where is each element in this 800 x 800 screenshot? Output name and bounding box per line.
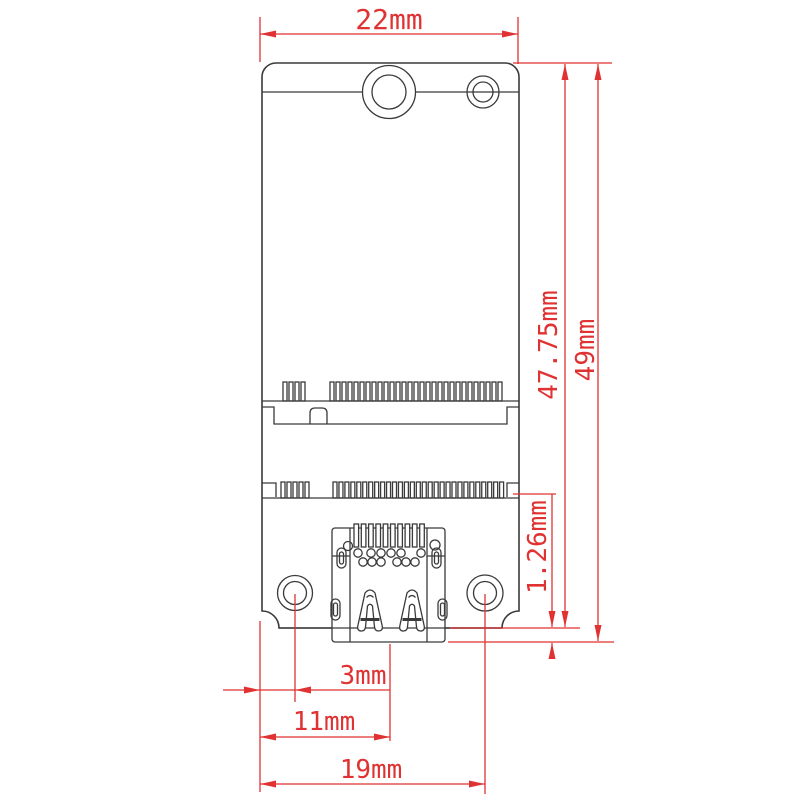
dim-label-edge-to-hole: 3mm [340, 661, 387, 691]
arrowhead [244, 687, 260, 694]
arrowhead [260, 31, 276, 38]
connector-shell [332, 528, 445, 642]
dimension-49mm: 49mm [571, 64, 602, 641]
latch-crossbar [361, 618, 380, 621]
dim-label-overhang: 1.26mm [523, 500, 553, 594]
arrowhead [549, 643, 556, 659]
dimension-11mm: 11mm [260, 707, 390, 741]
gold-fingers-lower-left [281, 482, 309, 498]
dim-label-edge-to-center: 11mm [293, 707, 356, 737]
top-center-hole [363, 66, 416, 119]
arrowhead [562, 64, 569, 80]
arrowhead [549, 611, 556, 627]
arrowhead [295, 687, 311, 694]
dimension-drawing-page: 22mm 47.75mm 49mm 1.26mm 3mm [0, 0, 800, 800]
arrowhead [260, 781, 276, 788]
gold-fingers-upper-main [330, 382, 502, 401]
arrowhead [595, 625, 602, 641]
arrowhead [469, 781, 485, 788]
dim-label-top-width: 22mm [355, 3, 422, 36]
dim-label-overall-height: 49mm [571, 319, 601, 382]
gold-fingers-lower-main [333, 482, 504, 498]
arrowhead [562, 611, 569, 627]
latch-crossbar [403, 618, 422, 621]
dimension-22mm: 22mm [260, 3, 518, 64]
dimension-19mm: 19mm [260, 755, 485, 788]
arrowhead [260, 734, 276, 741]
arrowhead [374, 734, 390, 741]
dim-label-edge-to-right-hole: 19mm [340, 755, 403, 785]
pcb-dimension-drawing: 22mm 47.75mm 49mm 1.26mm 3mm [0, 0, 800, 800]
dim-label-pcb-height: 47.75mm [534, 290, 564, 400]
arrowhead [595, 64, 602, 80]
arrowhead [502, 31, 518, 38]
